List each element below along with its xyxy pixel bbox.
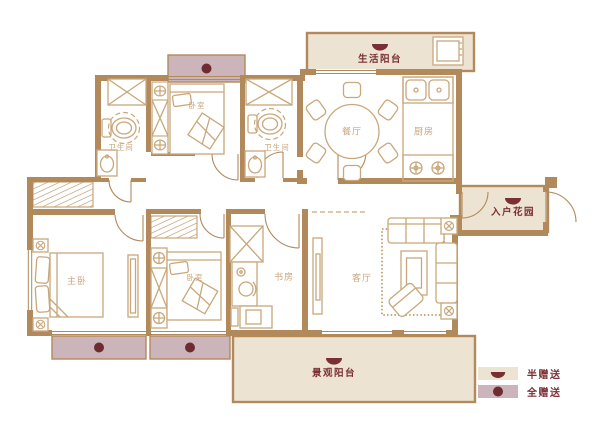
room-label-bath-b: 卫生间 bbox=[264, 142, 290, 152]
closet-hatch-master bbox=[33, 182, 93, 207]
room-label-bath-a: 卫生间 bbox=[108, 142, 134, 152]
full-gift-strip-top bbox=[168, 55, 245, 82]
study-phone bbox=[231, 308, 238, 326]
room-label-study: 书房 bbox=[274, 271, 294, 282]
sofa-side bbox=[436, 243, 457, 303]
life-balcony-content bbox=[433, 37, 463, 65]
legend: 半赠送 全赠送 bbox=[478, 367, 562, 399]
room-label-master: 主卧 bbox=[67, 275, 87, 286]
room-bath-a bbox=[97, 79, 146, 176]
full-gift-dot bbox=[493, 387, 503, 397]
room-label-living: 客厅 bbox=[352, 272, 372, 283]
legend-half-gift-label: 半赠送 bbox=[527, 368, 562, 381]
room-label-dining: 餐厅 bbox=[342, 126, 362, 137]
closet-hatch-bedroom bbox=[151, 216, 197, 238]
floorplan-canvas: 卫生间 卧室 卫生间 餐厅 厨房 主卧 卧室 书房 客厅 生活阳台 入户花园 景… bbox=[0, 0, 600, 429]
room-bath-b bbox=[245, 79, 292, 177]
full-gift-dot bbox=[94, 343, 104, 353]
label-life-balcony: 生活阳台 bbox=[358, 53, 402, 65]
legend-full-gift-label: 全赠送 bbox=[526, 386, 562, 399]
floorplan-page: 卫生间 卧室 卫生间 餐厅 厨房 主卧 卧室 书房 客厅 生活阳台 入户花园 景… bbox=[0, 0, 600, 429]
full-gift-strip-bedroom bbox=[150, 336, 230, 359]
sofa-main bbox=[388, 218, 444, 243]
label-view-balcony: 景观阳台 bbox=[311, 367, 356, 379]
full-gift-strip-master bbox=[52, 336, 146, 359]
master-tv-cabinet bbox=[128, 255, 138, 317]
room-label-bedroom-top: 卧室 bbox=[189, 100, 206, 110]
study-computer bbox=[240, 306, 272, 328]
label-entry-garden: 入户花园 bbox=[490, 206, 535, 218]
full-gift-dot bbox=[202, 64, 212, 74]
room-bedroom-b bbox=[151, 248, 221, 328]
room-living bbox=[313, 218, 457, 319]
room-study bbox=[230, 226, 272, 328]
room-bedroom-top bbox=[152, 82, 224, 154]
room-label-bedroom-b: 卧室 bbox=[187, 272, 204, 282]
room-label-kitchen: 厨房 bbox=[414, 126, 434, 137]
full-gift-dot bbox=[185, 343, 195, 353]
